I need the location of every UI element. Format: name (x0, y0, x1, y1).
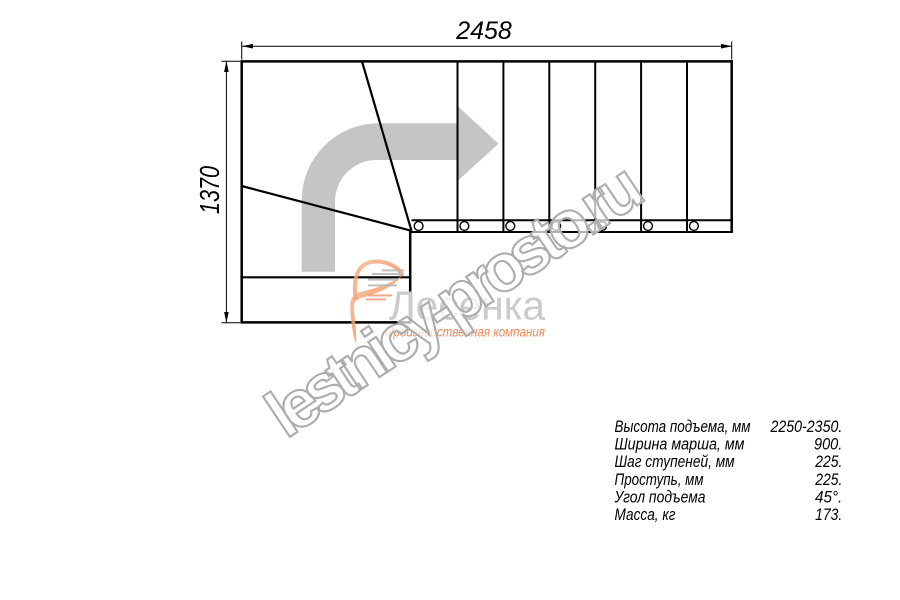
svg-text:Шаг ступеней, мм: Шаг ступеней, мм (615, 452, 735, 471)
svg-text:2458: 2458 (455, 17, 512, 45)
svg-text:45°.: 45°. (815, 487, 842, 506)
svg-text:Проступь, мм: Проступь, мм (615, 470, 704, 489)
svg-text:225.: 225. (814, 470, 842, 489)
svg-text:Масса, кг: Масса, кг (615, 505, 676, 524)
svg-text:2250-2350.: 2250-2350. (770, 417, 843, 436)
svg-text:900.: 900. (814, 435, 842, 454)
svg-text:Высота подъема, мм: Высота подъема, мм (615, 417, 751, 436)
svg-text:Угол подъема: Угол подъема (614, 487, 706, 506)
svg-text:173.: 173. (815, 505, 842, 524)
svg-text:225.: 225. (814, 452, 842, 471)
svg-text:Ширина марша, мм: Ширина марша, мм (615, 435, 745, 454)
svg-text:1370: 1370 (194, 166, 225, 214)
